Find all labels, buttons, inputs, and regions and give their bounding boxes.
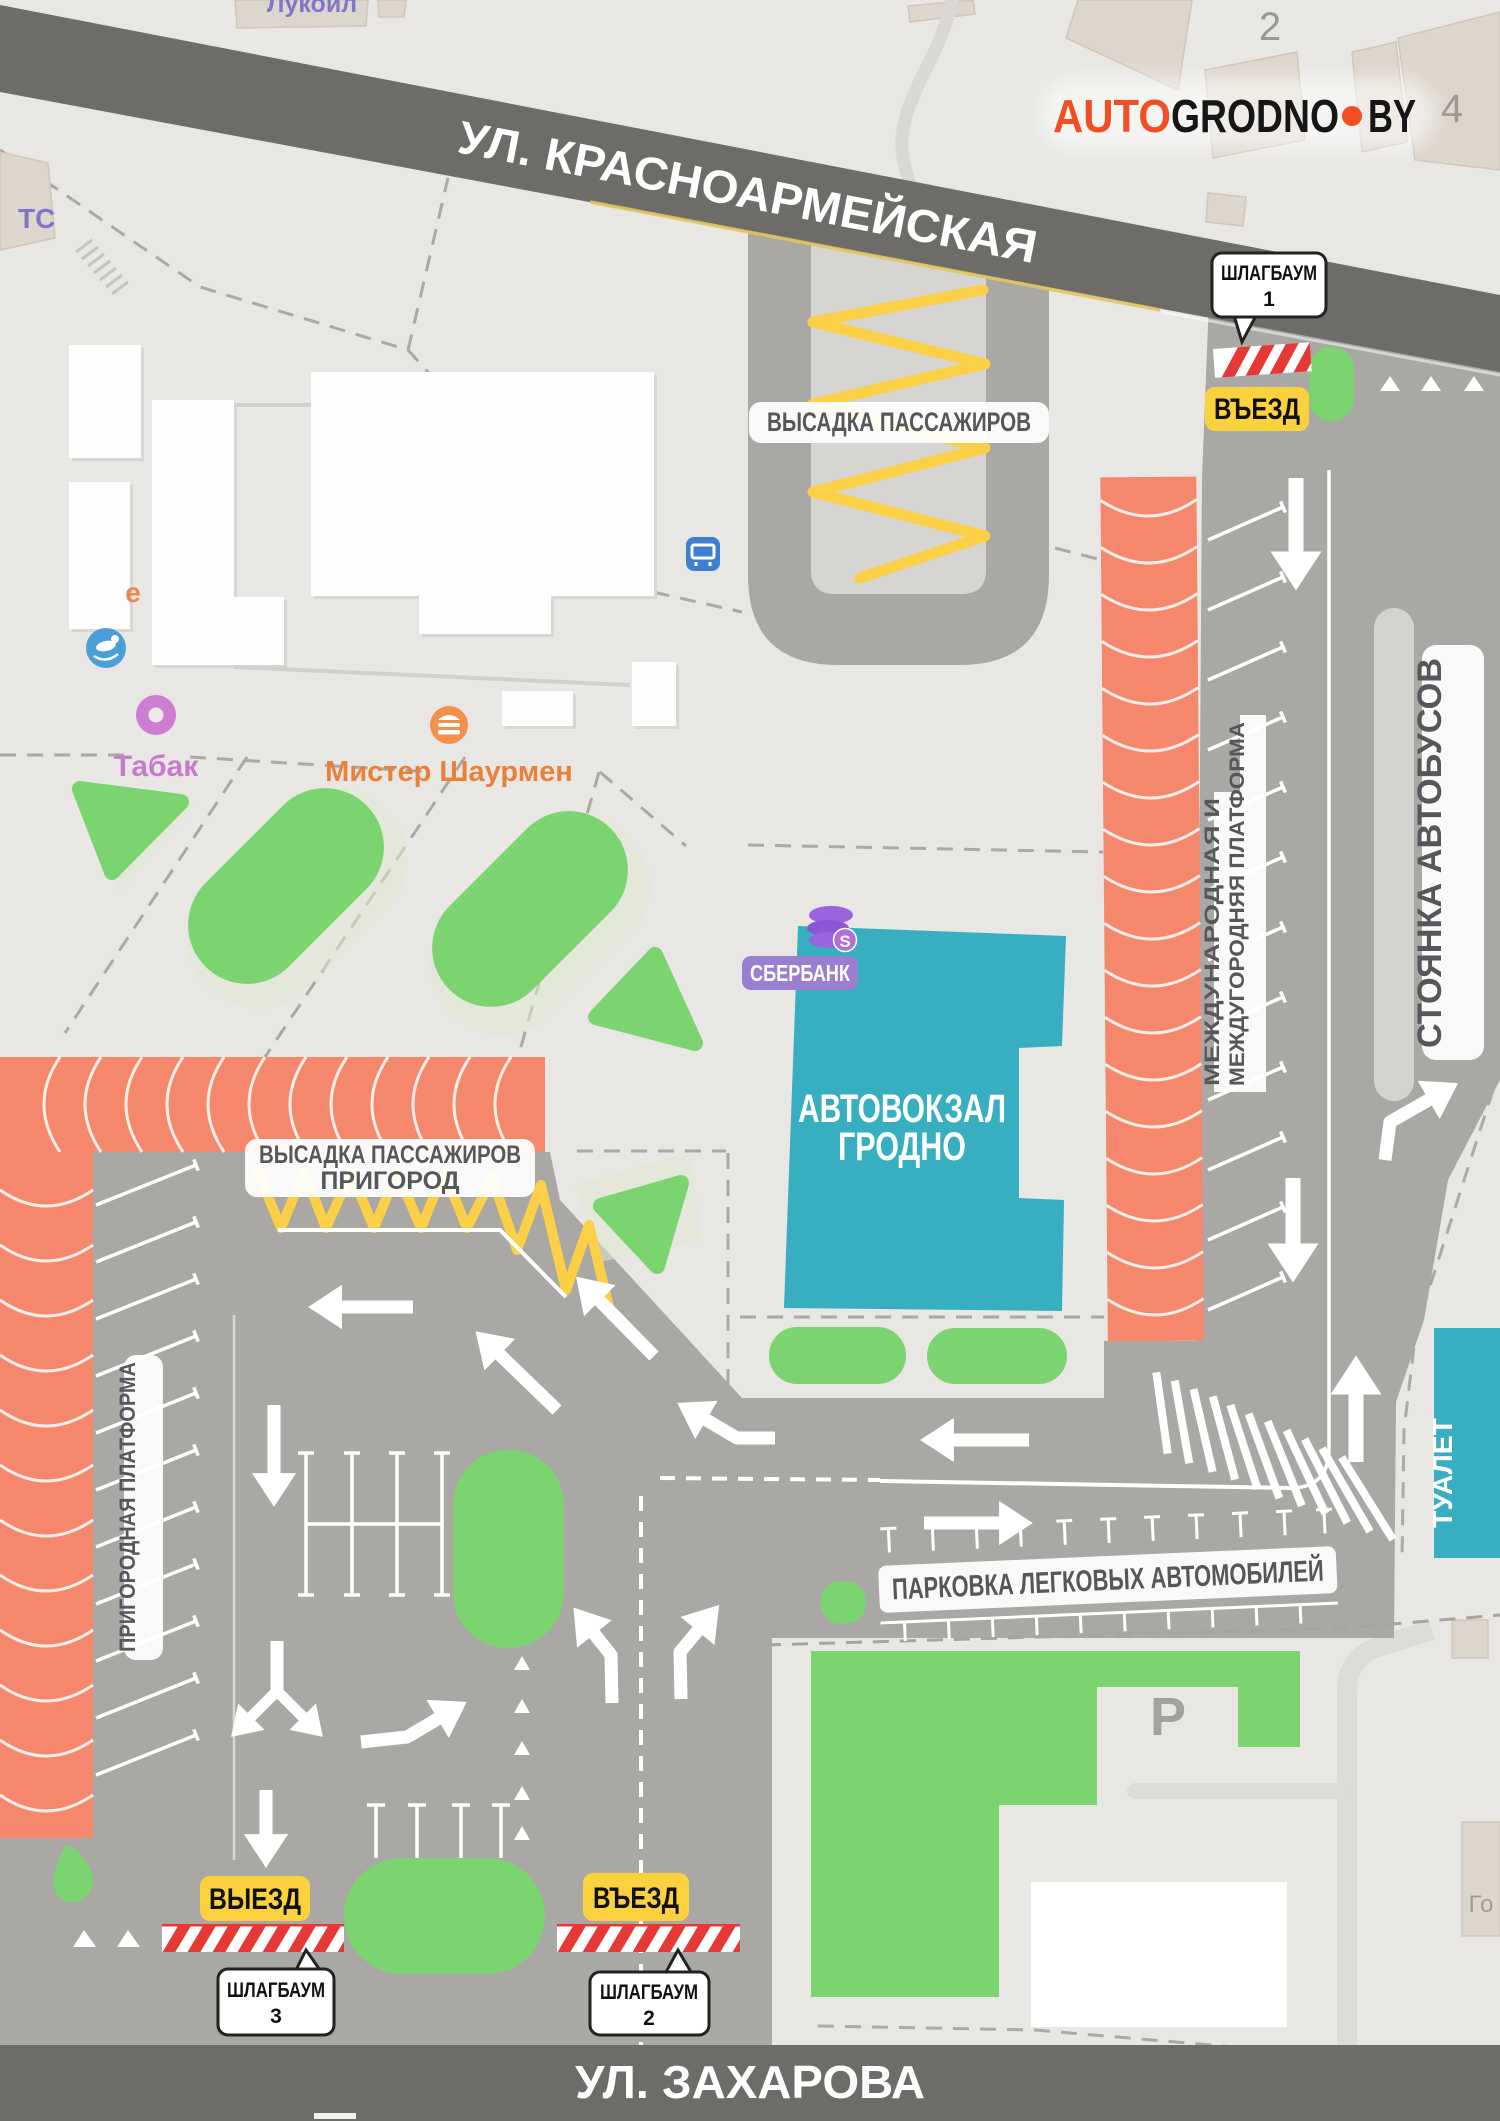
- svg-text:BY: BY: [1368, 90, 1416, 142]
- svg-text:УЛ. ЗАХАРОВА: УЛ. ЗАХАРОВА: [575, 2056, 925, 2108]
- svg-text:Р: Р: [1150, 1687, 1186, 1747]
- svg-text:4: 4: [1441, 87, 1463, 131]
- svg-text:ВЫСАДКА ПАССАЖИРОВ: ВЫСАДКА ПАССАЖИРОВ: [767, 407, 1031, 437]
- svg-text:1: 1: [1263, 288, 1275, 311]
- svg-text:ШЛАГБАУМ: ШЛАГБАУМ: [227, 1979, 325, 2002]
- svg-text:е: е: [125, 577, 141, 608]
- svg-text:AUTO: AUTO: [1053, 90, 1171, 142]
- svg-text:ВЫЕЗД: ВЫЕЗД: [209, 1883, 301, 1916]
- svg-text:МЕЖДУНАРОДНАЯ И: МЕЖДУНАРОДНАЯ И: [1201, 798, 1224, 1086]
- svg-text:Табак: Табак: [114, 750, 199, 783]
- svg-text:S: S: [839, 932, 850, 951]
- svg-text:Мистер Шаурмен: Мистер Шаурмен: [325, 756, 573, 788]
- svg-text:ВЫСАДКА ПАССАЖИРОВ: ВЫСАДКА ПАССАЖИРОВ: [259, 1141, 521, 1169]
- svg-text:GRODNO: GRODNO: [1171, 90, 1339, 142]
- svg-text:ТУАЛЕТ: ТУАЛЕТ: [1427, 1418, 1458, 1528]
- svg-text:3: 3: [270, 2005, 282, 2028]
- svg-text:ГРОДНО: ГРОДНО: [838, 1125, 966, 1169]
- svg-text:ПРИГОРОДНАЯ ПЛАТФОРМА: ПРИГОРОДНАЯ ПЛАТФОРМА: [115, 1362, 140, 1652]
- svg-text:МЕЖДУГОРОДНЯЯ ПЛАТФОРМА: МЕЖДУГОРОДНЯЯ ПЛАТФОРМА: [1226, 722, 1249, 1086]
- svg-text:Лукойл: Лукойл: [267, 0, 357, 18]
- svg-text:Го: Го: [1469, 1891, 1494, 1918]
- svg-text:ВЪЕЗД: ВЪЕЗД: [1214, 393, 1300, 426]
- svg-text:2: 2: [1259, 5, 1281, 49]
- svg-text:СБЕРБАНК: СБЕРБАНК: [750, 960, 851, 986]
- svg-text:ТС: ТС: [18, 203, 55, 234]
- svg-text:ПРИГОРОД: ПРИГОРОД: [320, 1167, 459, 1195]
- svg-text:ШЛАГБАУМ: ШЛАГБАУМ: [600, 1981, 698, 2004]
- svg-text:ВЪЕЗД: ВЪЕЗД: [593, 1882, 679, 1915]
- svg-text:ШЛАГБАУМ: ШЛАГБАУМ: [1221, 262, 1317, 285]
- svg-text:2: 2: [643, 2007, 655, 2030]
- svg-text:СТОЯНКА АВТОБУСОВ: СТОЯНКА АВТОБУСОВ: [1411, 658, 1449, 1048]
